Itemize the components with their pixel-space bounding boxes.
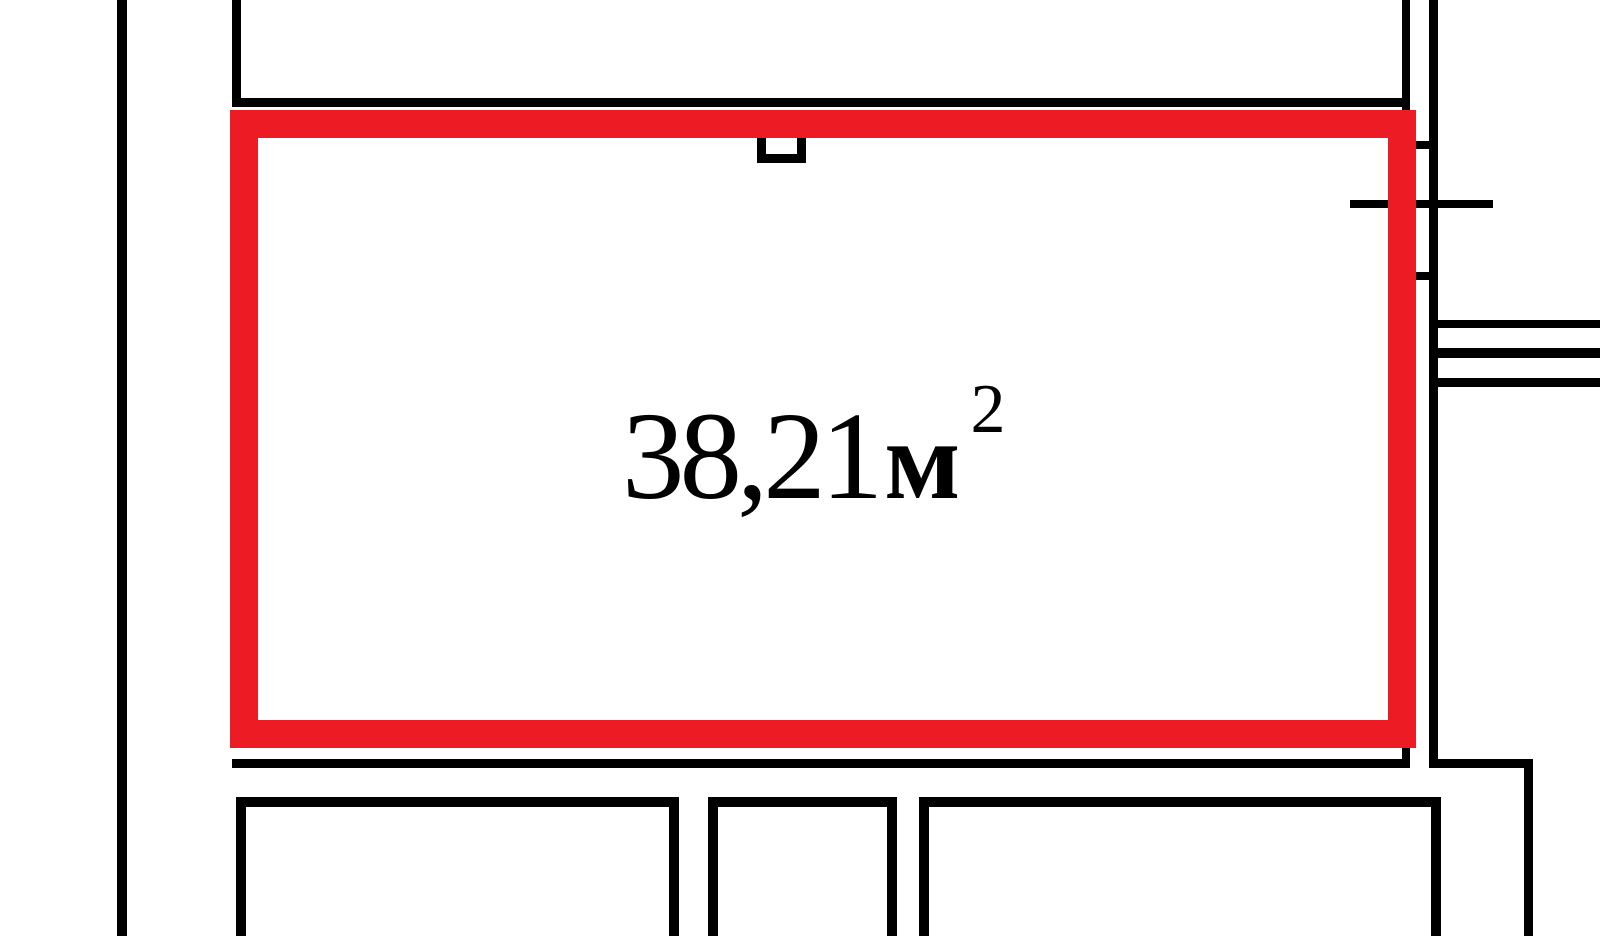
area-unit: м xyxy=(884,399,960,523)
upper-room-partition-wall xyxy=(232,0,241,107)
door-notch xyxy=(757,138,806,163)
bottom-room-1 xyxy=(236,797,679,936)
right-corridor-side-wall xyxy=(1524,759,1533,936)
right-wall-outer-line xyxy=(1429,0,1438,768)
area-superscript: 2 xyxy=(971,371,1006,448)
floor-plan: 38,21м2 xyxy=(0,0,1600,936)
lower-corridor-wall-right xyxy=(1429,759,1533,768)
lower-corridor-wall-left xyxy=(232,759,1410,768)
right-opening-line-bottom xyxy=(1438,378,1600,387)
area-value: 38,21 xyxy=(622,388,878,526)
room-area-label: 38,21м2 xyxy=(622,395,1006,520)
bottom-room-3 xyxy=(919,797,1441,936)
upper-room-bottom-wall xyxy=(232,98,1410,107)
left-outer-wall xyxy=(117,0,127,936)
right-opening-line-middle xyxy=(1438,348,1600,358)
right-opening-line-top xyxy=(1438,320,1600,328)
bottom-room-2 xyxy=(708,797,897,936)
